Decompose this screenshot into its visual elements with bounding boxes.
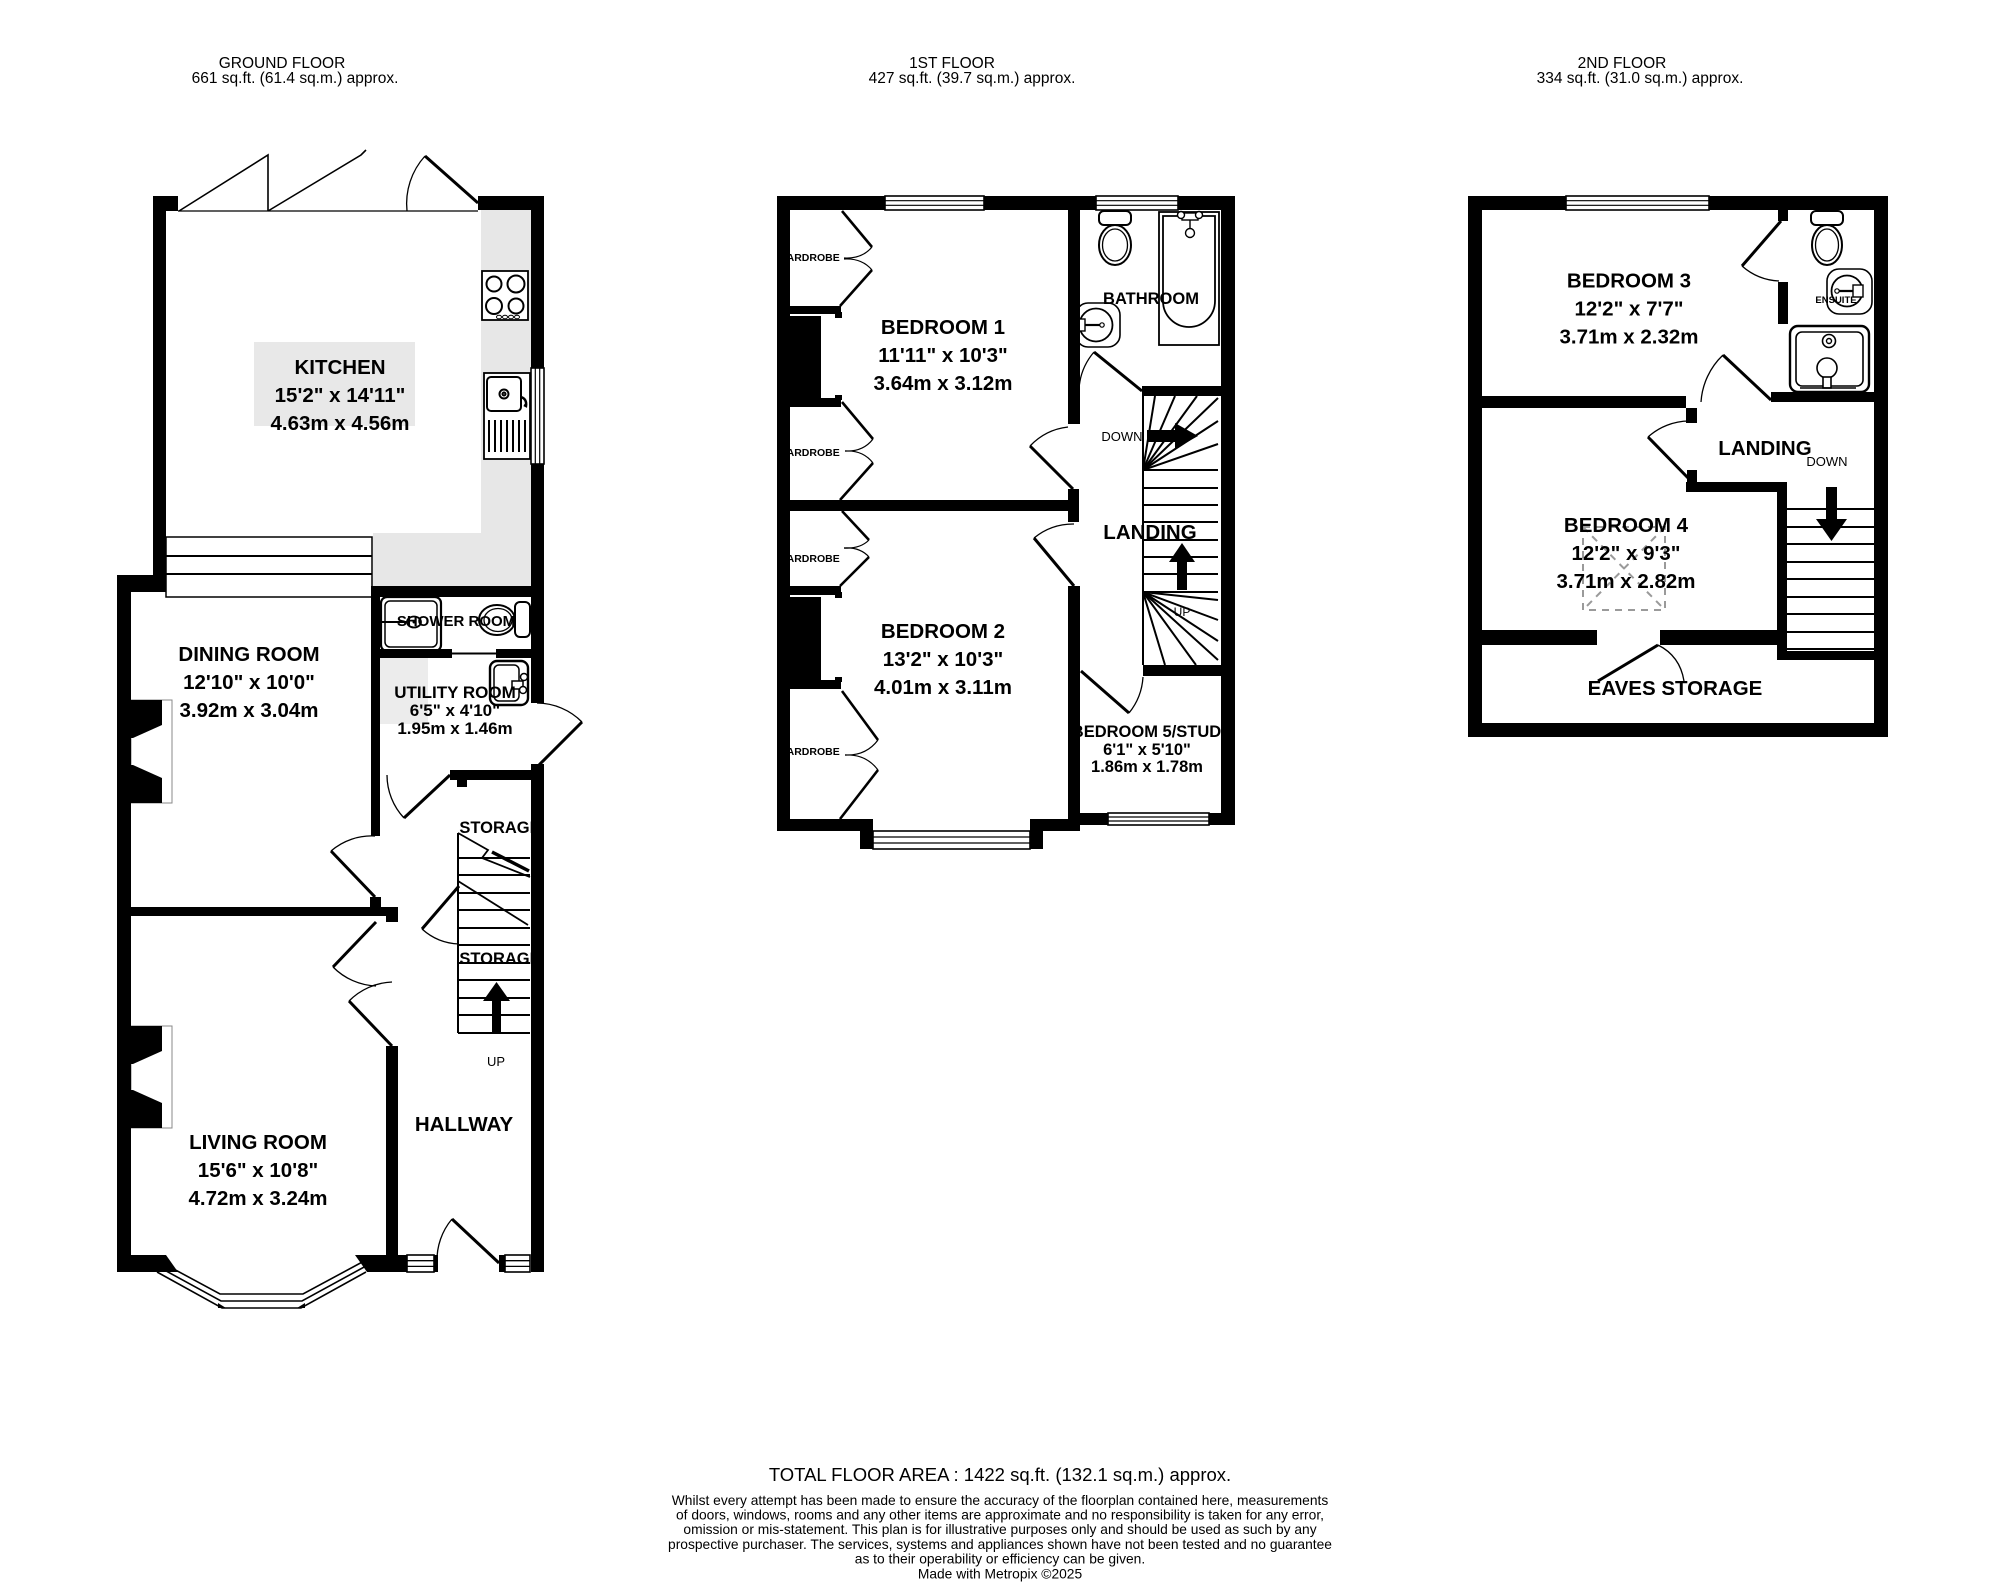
svg-text:1.86m x 1.78m: 1.86m x 1.78m — [1091, 758, 1203, 776]
svg-text:661 sq.ft. (61.4 sq.m.) approx: 661 sq.ft. (61.4 sq.m.) approx. — [192, 70, 399, 87]
svg-text:6'5" x 4'10": 6'5" x 4'10" — [410, 701, 500, 720]
svg-text:KITCHEN: KITCHEN — [294, 356, 385, 379]
svg-text:BATHROOM: BATHROOM — [1103, 290, 1199, 308]
svg-text:Whilst every attempt has been: Whilst every attempt has been made to en… — [672, 1493, 1329, 1508]
svg-text:4.63m x 4.56m: 4.63m x 4.56m — [270, 412, 409, 435]
svg-text:UTILITY ROOM: UTILITY ROOM — [394, 683, 516, 702]
svg-text:TOTAL FLOOR AREA : 1422 sq.ft.: TOTAL FLOOR AREA : 1422 sq.ft. (132.1 sq… — [769, 1464, 1231, 1485]
svg-text:STORAGE: STORAGE — [459, 819, 540, 837]
svg-text:EAVES STORAGE: EAVES STORAGE — [1588, 677, 1763, 700]
svg-text:DOWN: DOWN — [1101, 429, 1142, 444]
svg-text:6'1" x 5'10": 6'1" x 5'10" — [1103, 741, 1191, 759]
svg-text:DINING ROOM: DINING ROOM — [178, 643, 319, 666]
svg-text:11'11" x 10'3": 11'11" x 10'3" — [878, 344, 1008, 367]
svg-text:3.71m x 2.32m: 3.71m x 2.32m — [1559, 326, 1698, 349]
svg-text:BEDROOM 2: BEDROOM 2 — [881, 620, 1005, 643]
svg-text:ENSUITE: ENSUITE — [1815, 295, 1856, 306]
svg-text:BEDROOM 1: BEDROOM 1 — [881, 316, 1005, 339]
svg-text:LIVING ROOM: LIVING ROOM — [189, 1131, 327, 1154]
svg-text:12'2" x 7'7": 12'2" x 7'7" — [1575, 298, 1684, 321]
svg-text:LANDING: LANDING — [1103, 521, 1196, 544]
svg-text:3.64m x 3.12m: 3.64m x 3.12m — [873, 372, 1012, 395]
svg-text:BEDROOM 5/STUDY: BEDROOM 5/STUDY — [1072, 723, 1232, 741]
svg-text:15'6" x 10'8": 15'6" x 10'8" — [198, 1159, 318, 1182]
svg-text:427 sq.ft. (39.7 sq.m.) approx: 427 sq.ft. (39.7 sq.m.) approx. — [869, 70, 1076, 87]
svg-text:UP: UP — [487, 1054, 505, 1069]
svg-text:UP: UP — [1174, 605, 1191, 619]
svg-text:Made with Metropix ©2025: Made with Metropix ©2025 — [918, 1567, 1083, 1582]
svg-text:of doors, windows, rooms and a: of doors, windows, rooms and any other i… — [676, 1508, 1324, 1523]
svg-text:12'2" x 9'3": 12'2" x 9'3" — [1572, 542, 1681, 565]
svg-text:334 sq.ft. (31.0 sq.m.) approx: 334 sq.ft. (31.0 sq.m.) approx. — [1537, 70, 1744, 87]
svg-text:4.01m x 3.11m: 4.01m x 3.11m — [874, 676, 1012, 699]
svg-text:3.71m x 2.82m: 3.71m x 2.82m — [1556, 570, 1695, 593]
svg-text:LANDING: LANDING — [1718, 437, 1811, 460]
svg-text:4.72m x 3.24m: 4.72m x 3.24m — [188, 1187, 327, 1210]
svg-text:STORAGE: STORAGE — [459, 950, 540, 968]
svg-text:3.92m x 3.04m: 3.92m x 3.04m — [179, 699, 318, 722]
svg-text:HALLWAY: HALLWAY — [415, 1113, 514, 1136]
svg-text:prospective purchaser. The ser: prospective purchaser. The services, sys… — [668, 1537, 1332, 1552]
svg-text:omission or mis-statement. Thi: omission or mis-statement. This plan is … — [683, 1522, 1316, 1537]
svg-text:BEDROOM 4: BEDROOM 4 — [1564, 514, 1689, 537]
svg-text:SHOWER ROOM: SHOWER ROOM — [397, 613, 515, 630]
svg-text:13'2" x 10'3": 13'2" x 10'3" — [883, 648, 1003, 671]
svg-text:as to their operability or eff: as to their operability or efficiency ca… — [855, 1551, 1145, 1566]
svg-text:BEDROOM 3: BEDROOM 3 — [1567, 270, 1691, 293]
svg-text:12'10" x 10'0": 12'10" x 10'0" — [183, 671, 315, 694]
svg-text:DOWN: DOWN — [1806, 454, 1847, 469]
svg-text:15'2" x 14'11": 15'2" x 14'11" — [275, 384, 406, 407]
svg-text:1.95m x 1.46m: 1.95m x 1.46m — [397, 719, 512, 738]
